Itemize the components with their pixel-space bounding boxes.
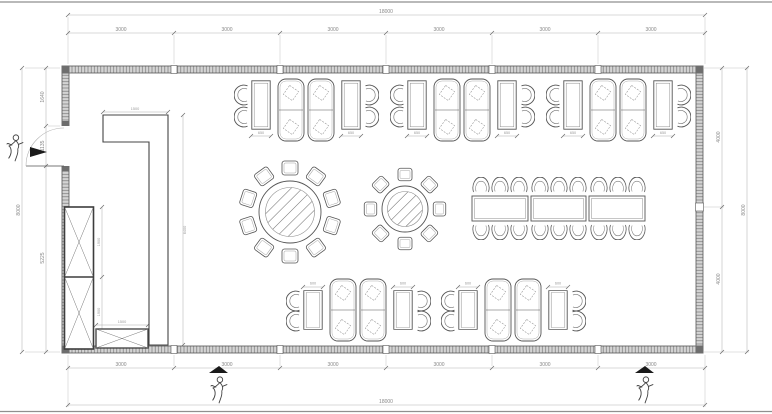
dim-label: 8000 <box>741 204 747 215</box>
dim-label: 3000 <box>327 27 338 33</box>
round-table-10 <box>239 161 341 263</box>
dim-label: 600 <box>310 282 316 286</box>
dim-label: 8000 <box>16 204 22 215</box>
dim-label: 650 <box>504 131 510 135</box>
floor-plan-canvas: 18000 3000 3000 3000 3000 3000 3000 3000… <box>0 0 772 414</box>
dim-label: 5225 <box>40 252 46 263</box>
booth-module <box>390 79 535 141</box>
dim-label: 3000 <box>221 362 232 368</box>
dim-label: 1900 <box>97 308 101 316</box>
dim-label: 3000 <box>539 27 550 33</box>
booth-module <box>286 279 431 341</box>
dim-label: 600 <box>555 282 561 286</box>
dim-label: 650 <box>258 131 264 135</box>
door-opening <box>61 126 71 166</box>
dim-label: 1500 <box>118 320 126 324</box>
dim-label: 3000 <box>221 27 232 33</box>
dim-label: 1640 <box>40 91 46 102</box>
dim-label: 4000 <box>716 273 722 284</box>
cabinet-tall <box>65 207 94 349</box>
dim-label: 3000 <box>645 362 656 368</box>
booth-module <box>546 79 691 141</box>
wall-bottom <box>62 346 703 353</box>
dim-label: 18000 <box>379 9 393 15</box>
dim-label: 18000 <box>379 399 393 405</box>
dim-label: 3000 <box>645 27 656 33</box>
floor-plan: 18000 3000 3000 3000 3000 3000 3000 3000… <box>0 0 772 414</box>
booth-module <box>441 279 586 341</box>
entrance-figure-bottom-1 <box>209 366 228 403</box>
dim-label: 650 <box>414 131 420 135</box>
dim-label: 1900 <box>97 238 101 246</box>
dim-label: 3000 <box>115 27 126 33</box>
dim-label: 4000 <box>716 131 722 142</box>
door-jamb-top <box>62 121 69 126</box>
dim-label: 3000 <box>539 362 550 368</box>
dim-label: 3000 <box>433 27 444 33</box>
dim-label: 600 <box>400 282 406 286</box>
dim-label: 1135 <box>40 140 46 151</box>
door-jamb-bottom <box>62 166 69 171</box>
dim-label: 1500 <box>131 107 139 111</box>
dim-label: 650 <box>660 131 666 135</box>
partition-screen <box>103 115 168 345</box>
dim-label: 600 <box>465 282 471 286</box>
dim-label: 3000 <box>327 362 338 368</box>
dim-label: 3000 <box>115 362 126 368</box>
booth-module <box>234 79 379 141</box>
round-table-8 <box>364 168 446 250</box>
dim-label: 650 <box>348 131 354 135</box>
entrance-figure-bottom-2 <box>635 366 654 403</box>
dim-label: 6400 <box>183 226 187 234</box>
cabinet-base <box>96 329 148 348</box>
dim-label: 3000 <box>433 362 444 368</box>
banquet-table-group <box>472 177 645 240</box>
dim-label: 650 <box>570 131 576 135</box>
wall-top <box>62 66 703 73</box>
